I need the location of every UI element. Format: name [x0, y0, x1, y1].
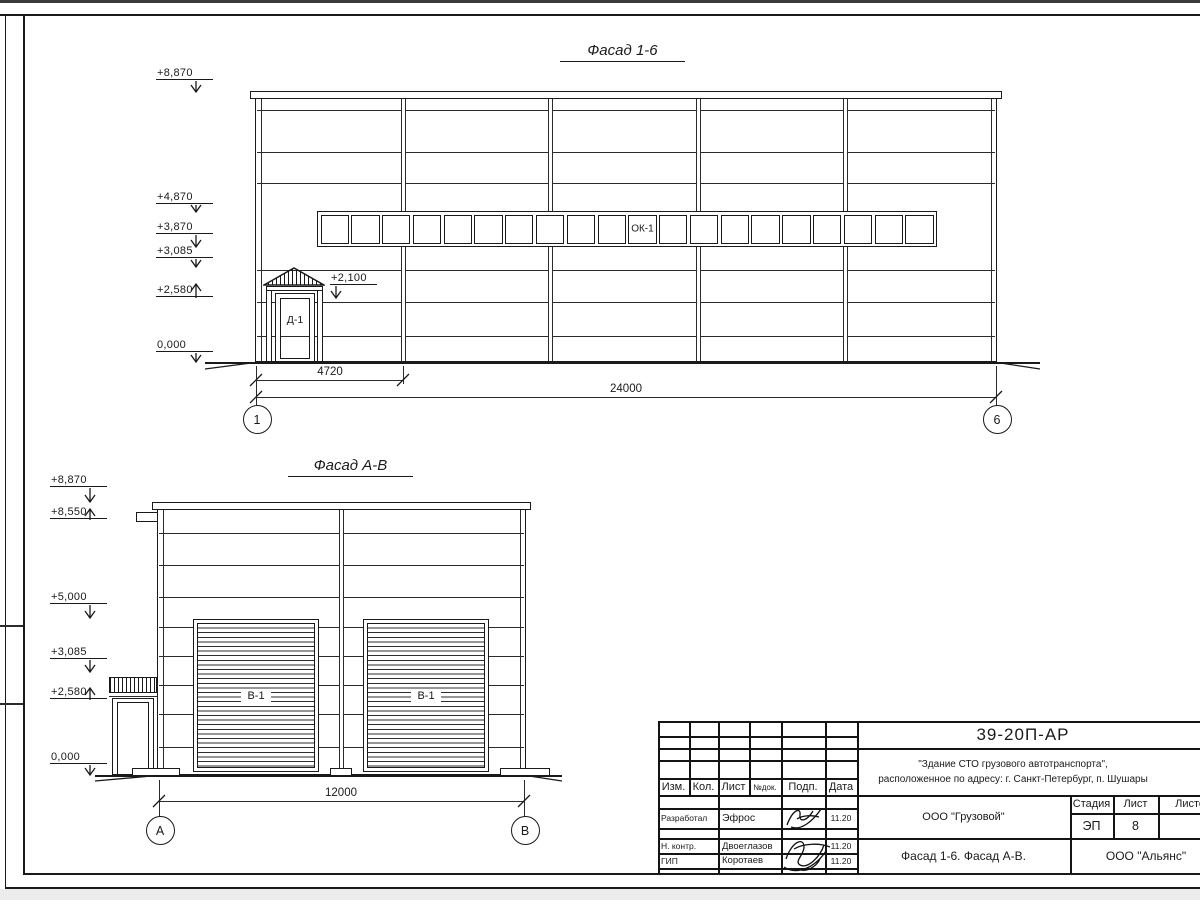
frame-top [0, 14, 1200, 16]
window-pane [875, 215, 903, 244]
door-canopy-gable [263, 266, 325, 287]
project-name-line2: расположенное по адресу: г. Санкт-Петерб… [853, 772, 1173, 787]
window-pane [690, 215, 718, 244]
corner-line [520, 510, 521, 774]
project-name: "Здание СТО грузового автотранспорта", р… [853, 750, 1173, 794]
corner-line [163, 510, 164, 774]
column-line [339, 510, 344, 774]
doc-code: 39-20П-АР [857, 721, 1189, 748]
window-pane [382, 215, 410, 244]
rev-header-kol: Кол. [689, 778, 718, 796]
window-pane [598, 215, 626, 244]
sheets-header: Листов [1158, 795, 1200, 813]
dimension-line [256, 397, 996, 398]
window-band: ОК-1 [317, 211, 937, 247]
elevation-mark: +3,085 [50, 646, 107, 659]
axis-bubble: А [146, 816, 175, 845]
door-leaf [280, 298, 310, 359]
panel-joint [257, 302, 995, 303]
drawing-sheet: Фасад 1-6 +8,870 +4,870 +3,870 +3,085 +2… [0, 0, 1200, 900]
frame-bottom [23, 873, 1200, 875]
window-pane [813, 215, 841, 244]
dimension-value: 4720 [314, 366, 346, 378]
dimension-value: 24000 [607, 383, 645, 395]
signature [780, 835, 832, 873]
porch-beam [266, 286, 323, 291]
axis-bubble: В [511, 816, 540, 845]
door-label: Д-1 [285, 314, 305, 326]
panel-joint [257, 110, 995, 111]
panel-joint [257, 336, 995, 337]
elevation-mark: 0,000 [156, 339, 213, 352]
window-pane [321, 215, 349, 244]
side-porch-door [117, 702, 149, 775]
title-block: Изм. Кол. Лист №док. Подп. Дата Разработ… [658, 721, 1200, 873]
stage-value: ЭП [1070, 813, 1113, 838]
dimension-line [256, 380, 403, 381]
gate-shutter: В-1 [367, 623, 485, 768]
window-pane: ОК-1 [628, 215, 656, 244]
elevation-mark: +2,580 [50, 686, 107, 699]
signer-role: Разработал [661, 808, 718, 828]
frame-left [23, 14, 25, 873]
sheet-header: Лист [1113, 795, 1158, 813]
corner-line [261, 99, 262, 361]
elevation-mark: +8,550 [50, 506, 107, 519]
gate-shutter: В-1 [197, 623, 315, 768]
side-canopy [109, 677, 157, 693]
fold-mark-bottom [0, 703, 23, 705]
elevation-mark: +2,580 [156, 284, 213, 297]
extension-line [524, 780, 525, 817]
signature [783, 803, 827, 831]
elevation-mark: +8,870 [156, 67, 213, 80]
project-name-line1: "Здание СТО грузового автотранспорта", [853, 757, 1173, 772]
elevation-mark: +8,870 [50, 474, 107, 487]
elevation-mark: +5,000 [50, 591, 107, 604]
window-pane [413, 215, 441, 244]
elevation-mark: +3,085 [156, 245, 213, 258]
gate-label: В-1 [411, 689, 440, 703]
sheets-total [1158, 813, 1200, 838]
rev-header-podp: Подп. [781, 778, 825, 796]
stage-header: Стадия [1070, 795, 1113, 813]
window-pane [751, 215, 779, 244]
window-pane [721, 215, 749, 244]
fold-mark-top [0, 625, 23, 627]
elevation-mark: +3,870 [156, 221, 213, 234]
signer-date: 11.20 [825, 808, 857, 828]
elevation-mark: +2,100 [330, 272, 377, 285]
company-name: ООО "Альянс" [1070, 838, 1200, 873]
facade1-title: Фасад 1-6 [560, 42, 685, 62]
window-pane [844, 215, 872, 244]
axis-bubble: 6 [983, 405, 1012, 434]
ground-line [205, 362, 1040, 364]
gate: В-1 [193, 619, 319, 772]
signer-role: ГИП [661, 853, 718, 868]
rev-header-izm: Изм. [658, 778, 689, 796]
extension-line [256, 366, 257, 406]
window-pane [905, 215, 933, 244]
extension-line [996, 366, 997, 406]
roof-pipe [136, 512, 158, 522]
door-panel-line [281, 336, 309, 337]
corner-line [991, 99, 992, 361]
sheet-number: 8 [1113, 813, 1158, 838]
facade2-title: Фасад А-В [288, 457, 413, 477]
dimension-value: 12000 [322, 787, 360, 799]
signer-name: Эфрос [722, 808, 780, 828]
rev-header-ndok: №док. [749, 778, 781, 796]
window-pane [444, 215, 472, 244]
extension-line [159, 780, 160, 817]
window-pane [474, 215, 502, 244]
window-pane [505, 215, 533, 244]
ground-line [95, 775, 562, 777]
screen-top-edge [0, 0, 1200, 3]
panel-joint [257, 183, 995, 184]
elevation-mark: +4,870 [156, 191, 213, 204]
signer-role: Н. контр. [661, 839, 718, 853]
window-pane [351, 215, 379, 244]
sheet-edge-left [5, 14, 6, 887]
rev-header-list: Лист [718, 778, 749, 796]
window-pane [782, 215, 810, 244]
extension-line [403, 366, 404, 384]
window-pane [567, 215, 595, 244]
signer-name: Коротаев [722, 853, 782, 868]
elevation-mark: 0,000 [50, 751, 107, 764]
porch-post [266, 290, 272, 362]
screen-bottom-strip [0, 889, 1200, 900]
sheet-title: Фасад 1-6. Фасад А-В. [857, 838, 1070, 873]
gate: В-1 [363, 619, 489, 772]
window-pane [659, 215, 687, 244]
window-band-label: ОК-1 [630, 224, 655, 235]
panel-joint [257, 270, 995, 271]
canopy-fascia-line [109, 696, 157, 697]
gate-label: В-1 [241, 689, 270, 703]
panel-joint [257, 152, 995, 153]
dimension-line [159, 801, 524, 802]
client-name: ООО "Грузовой" [857, 795, 1070, 838]
porch-post [317, 290, 323, 362]
signer-name: Двоеглазов [722, 839, 782, 853]
axis-bubble: 1 [243, 405, 272, 434]
window-pane [536, 215, 564, 244]
